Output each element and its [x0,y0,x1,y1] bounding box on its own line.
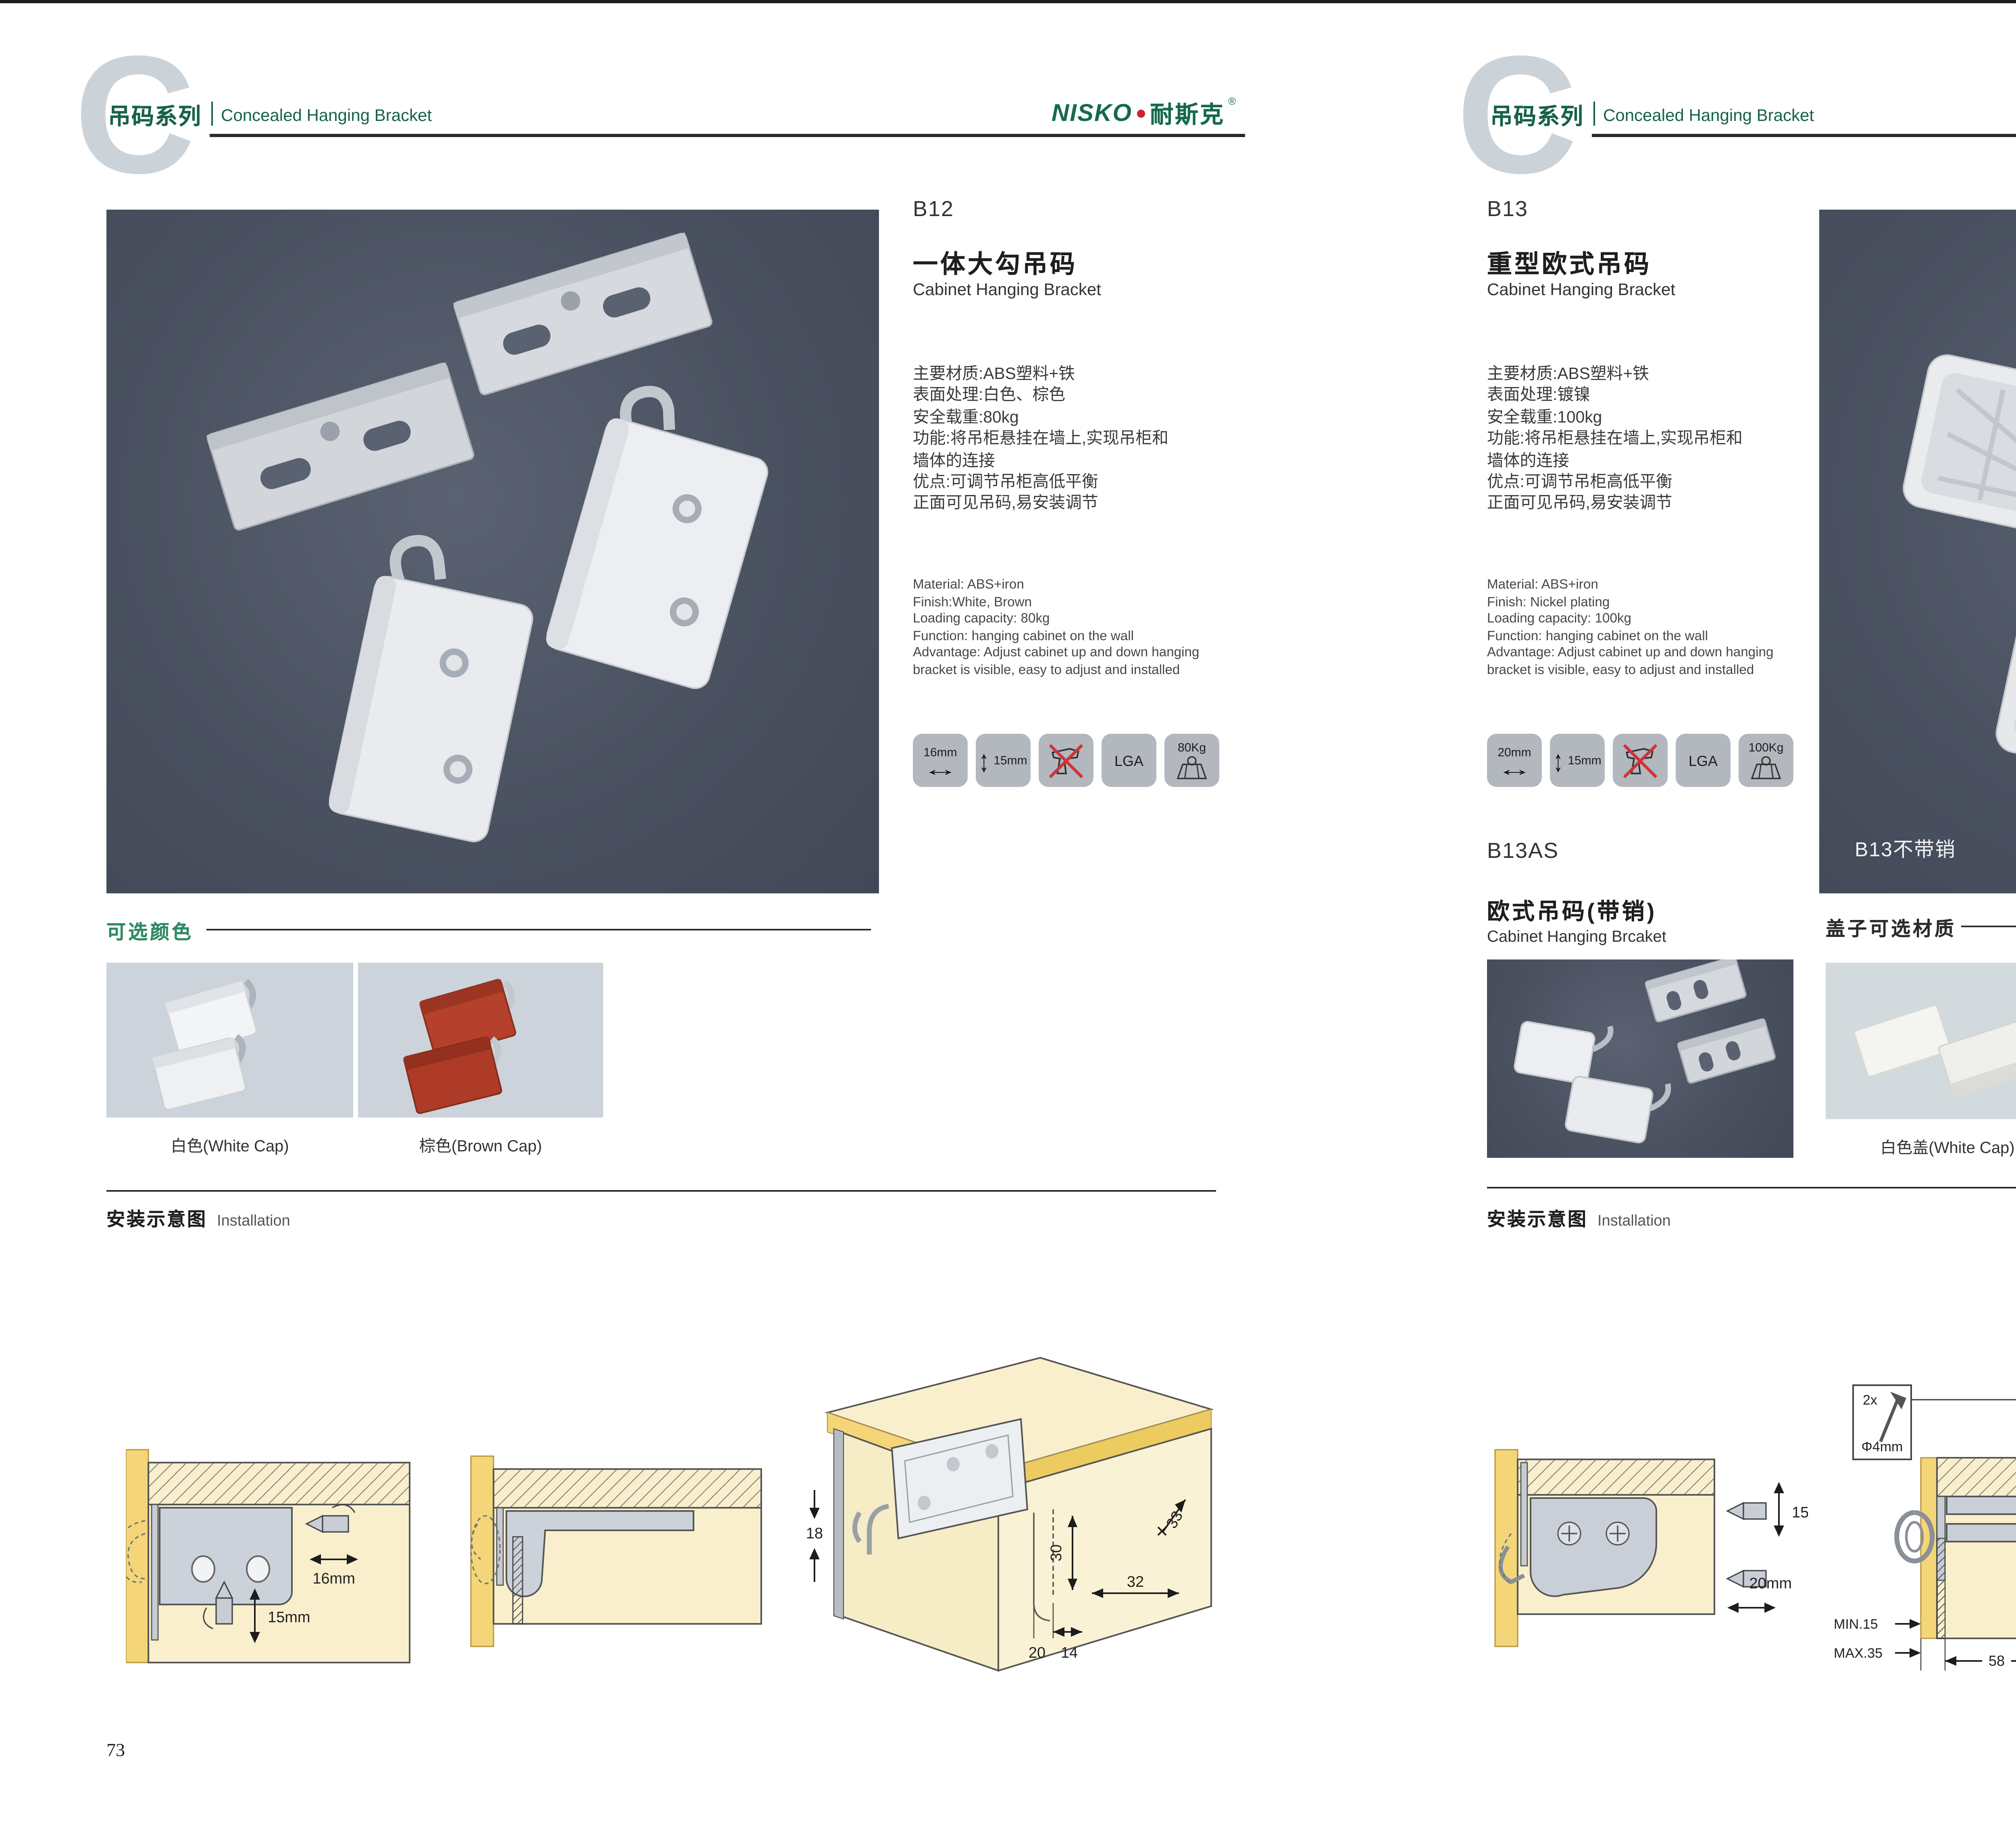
product-specs-cn: 主要材质:ABS塑料+铁 表面处理:白色、棕色 安全载重:80kg 功能:将吊柜… [913,364,1168,516]
series-title-cn: 吊码系列 [1490,100,1584,132]
svg-text:15mm: 15mm [1792,1504,1808,1521]
spec-line: 安全载重:80kg [913,408,1168,429]
product-name-cn: 重型欧式吊码 [1487,245,1652,281]
top-border-line [0,0,2016,2]
load-capacity-icon [1747,756,1785,780]
header-rule [1592,134,2016,136]
spec-line: 优点:可调节吊柜高低平衡 [1487,472,1743,494]
brand-logo-cn: 耐斯克 [1150,97,1225,131]
svg-text:14: 14 [1061,1644,1078,1661]
cover-option-white-photo [1826,963,2016,1119]
brand-logo-en: NISKO [1052,100,1132,127]
covers-section-title: 盖子可选材质 [1826,914,1956,942]
spec-line: 优点:可调节吊柜高低平衡 [913,472,1168,494]
svg-text:18: 18 [806,1525,823,1542]
installation-diagram-2: 2x Φ4mm [1831,1384,2016,1690]
series-title-en: Concealed Hanging Bracket [221,106,432,126]
horizontal-arrow-icon: ↔ [922,760,958,776]
icon-tile-load: 80Kg [1164,734,1219,787]
cover-option-white-label: 白色盖(White Cap) [1826,1134,2016,1158]
product-name-en: Cabinet Hanging Bracket [913,281,1101,300]
svg-text:MAX.35: MAX.35 [1834,1646,1883,1661]
spec-line: 正面可见吊码,易安装调节 [1487,494,1743,516]
spec-line: 主要材质:ABS塑料+铁 [1487,364,1743,386]
svg-text:MIN.15: MIN.15 [1834,1617,1878,1632]
sub-product-name-en: Cabinet Hanging Brcaket [1487,929,1666,947]
product-photo-label: B13不带销 [1855,832,1956,863]
spec-line: Function: hanging cabinet on the wall [1487,627,1773,644]
color-option-white-photo [106,963,353,1118]
spec-line: Loading capacity: 80kg [913,610,1199,627]
icon-label: LGA [1689,752,1718,768]
svg-text:30: 30 [1048,1544,1065,1561]
icon-label: 15mm [1568,753,1601,768]
icon-label: 100Kg [1749,740,1784,755]
series-title-cn: 吊码系列 [108,100,202,132]
svg-text:32: 32 [1127,1573,1144,1590]
series-separator [211,102,213,126]
hanging-bracket-body [1993,593,2016,812]
svg-text:20: 20 [1029,1644,1045,1661]
spec-line: Material: ABS+iron [1487,576,1773,593]
spec-line: Advantage: Adjust cabinet up and down ha… [1487,644,1773,661]
product-photo-b13-drawing [1819,210,2016,893]
icon-tile-panel-width: 20mm ↔ [1487,734,1542,787]
icon-tile-panel-thickness: ↕ 15mm [1550,734,1605,787]
section-divider [1487,1187,2016,1189]
color-option-brown-photo [358,963,603,1118]
icon-tile-lga: LGA [1102,734,1156,787]
installation-title-cn: 安装示意图 [106,1206,207,1232]
installation-diagram-1: 15mm 20mm [1492,1440,1808,1666]
spec-line: Finish:White, Brown [913,593,1199,610]
product-name-en: Cabinet Hanging Bracket [1487,281,1675,300]
colors-section-title: 可选颜色 [106,918,194,945]
product-code: B13 [1487,197,1528,221]
icon-tile-panel-thickness: ↕ 15mm [976,734,1031,787]
spec-line: bracket is visible, easy to adjust and i… [913,661,1199,678]
brand-logo-reg: ® [1228,97,1236,108]
spec-line: 墙体的连接 [913,451,1168,473]
spec-line: 墙体的连接 [1487,451,1743,473]
colors-section-rule [206,929,871,931]
icon-label: 16mm [923,744,957,759]
installation-diagram-3: 18 30 32 33 20 14 [798,1351,1227,1706]
svg-text:16mm: 16mm [312,1570,355,1587]
spec-line: 主要材质:ABS塑料+铁 [913,364,1168,386]
catalog-spread: C 吊码系列 Concealed Hanging Bracket NISKO 耐… [0,0,2016,1848]
svg-text:20mm: 20mm [1749,1575,1792,1592]
series-separator [1593,102,1595,126]
sub-product-name-cn: 欧式吊码(带销) [1487,895,1657,927]
sub-product-code: B13AS [1487,839,1559,863]
spec-line: 表面处理:白色、棕色 [913,386,1168,408]
no-drill-icon [1045,739,1087,781]
section-divider [106,1190,1216,1192]
spec-line: 功能:将吊柜悬挂在墙上,实现吊柜和 [913,429,1168,451]
wall-rail-plate [453,233,713,396]
icon-tile-load: 100Kg [1739,734,1793,787]
spec-line: Finish: Nickel plating [1487,593,1773,610]
spec-line: bracket is visible, easy to adjust and i… [1487,661,1773,678]
svg-text:15mm: 15mm [268,1609,310,1626]
icon-label: 15mm [993,753,1027,768]
installation-title-en: Installation [1597,1213,1671,1230]
no-drill-icon [1619,739,1661,781]
spec-line: 安全载重:100kg [1487,408,1743,429]
product-name-cn: 一体大勾吊码 [913,245,1077,281]
hanging-bracket-body [327,533,544,844]
icon-tile-no-drill [1613,734,1668,787]
installation-title-cn: 安装示意图 [1487,1206,1588,1232]
svg-text:58: 58 [1989,1652,2005,1669]
horizontal-arrow-icon: ↔ [1496,760,1533,776]
svg-text:2x: 2x [1863,1392,1877,1408]
spec-line: Function: hanging cabinet on the wall [913,627,1199,644]
spec-line: Loading capacity: 100kg [1487,610,1773,627]
spec-line: Advantage: Adjust cabinet up and down ha… [913,644,1199,661]
product-specs-en: Material: ABS+iron Finish:White, Brown L… [913,576,1199,678]
wall-rail-plate [206,362,475,531]
svg-text:Φ4mm: Φ4mm [1862,1439,1903,1455]
product-photo-b12 [106,210,879,893]
vertical-arrow-icon: ↕ [979,745,989,776]
covers-section-rule [1961,926,2016,928]
spec-line: Material: ABS+iron [913,576,1199,593]
icon-label: LGA [1114,752,1143,768]
icon-tile-no-drill [1039,734,1093,787]
header-rule [210,134,1245,136]
icon-label: 20mm [1497,744,1531,759]
product-photo-b13: B13不带销 [1819,210,2016,893]
icon-tile-panel-width: 16mm ↔ [913,734,968,787]
spec-line: 正面可见吊码,易安装调节 [913,494,1168,516]
hanging-bracket-body [544,382,781,691]
icon-label: 80Kg [1178,740,1206,755]
icon-tile-lga: LGA [1676,734,1731,787]
spec-line: 功能:将吊柜悬挂在墙上,实现吊柜和 [1487,429,1743,451]
installation-heading: 安装示意图 Installation [1487,1206,1671,1232]
brand-logo-dot-icon [1137,110,1145,118]
series-title-en: Concealed Hanging Bracket [1603,106,1814,126]
load-capacity-icon [1173,756,1211,780]
hanging-bracket-body [1900,352,2016,565]
installation-title-en: Installation [217,1213,290,1230]
product-code: B12 [913,197,954,221]
product-specs-cn: 主要材质:ABS塑料+铁 表面处理:镀镍 安全载重:100kg 功能:将吊柜悬挂… [1487,364,1743,516]
product-specs-en: Material: ABS+iron Finish: Nickel platin… [1487,576,1773,678]
brand-logo: NISKO 耐斯克 ® [1052,97,1236,131]
installation-heading: 安装示意图 Installation [106,1206,290,1232]
product-photo-b12-drawing [106,210,879,893]
installation-diagram-1: 16mm 15mm [126,1427,423,1677]
color-option-white-label: 白色(White Cap) [106,1132,353,1156]
spec-line: 表面处理:镀镍 [1487,386,1743,408]
color-option-brown-label: 棕色(Brown Cap) [358,1132,603,1156]
page-number-left: 73 [106,1742,125,1761]
installation-diagram-2 [464,1443,771,1664]
sub-product-photo [1487,959,1793,1158]
vertical-arrow-icon: ↕ [1553,745,1563,776]
